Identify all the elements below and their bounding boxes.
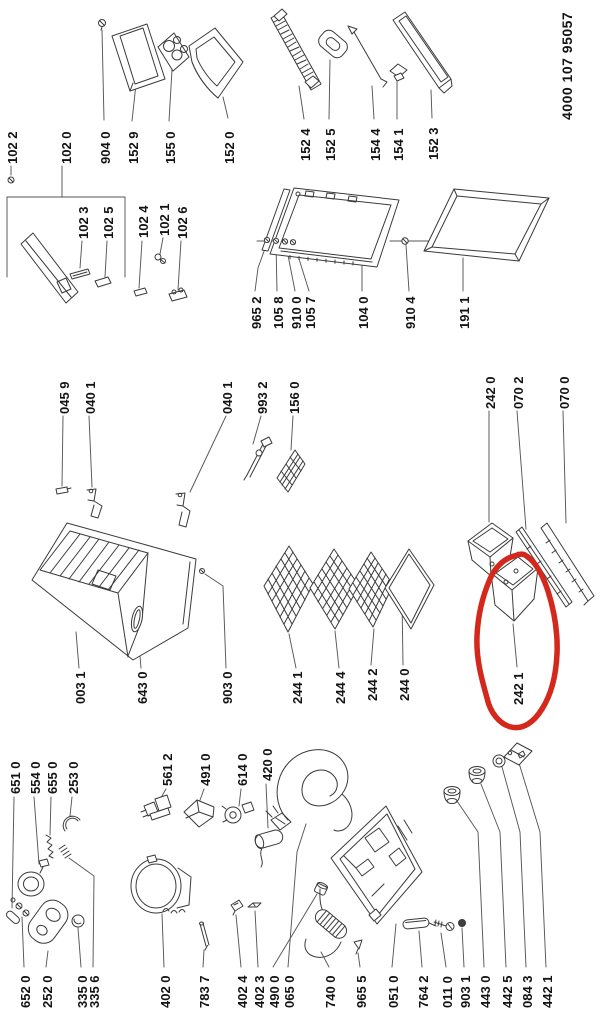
label-490-0: 490 0: [267, 975, 282, 1008]
part-clip-402-3: [248, 903, 261, 907]
label-764-2: 764 2: [416, 975, 431, 1008]
label-104-0: 104 0: [356, 296, 371, 329]
exploded-parts-diagram: 4000 107 95057 102 2 102 0 904 0 152 9 1…: [0, 0, 600, 1020]
label-154-1: 154 1: [391, 128, 406, 161]
part-grommet-490-0: [314, 881, 329, 896]
label-011-0: 011 0: [440, 976, 455, 1008]
part-spring-655-0: [46, 835, 53, 858]
label-152-0: 152 0: [222, 131, 237, 164]
part-screw-903-0: [200, 569, 205, 574]
label-904-0: 904 0: [98, 131, 113, 164]
label-910-4: 910 4: [403, 296, 418, 329]
label-154-4: 154 4: [368, 128, 383, 161]
label-965-2: 965 2: [249, 296, 264, 329]
label-045-9: 045 9: [57, 381, 72, 414]
part-ice-tray-156-0: [277, 450, 305, 492]
part-foot-443-0: [444, 787, 460, 804]
part-screw-910-4: [402, 238, 408, 244]
part-drier-764-2: [403, 918, 436, 930]
parts-diagram-page: 4000 107 95057 102 2 102 0 904 0 152 9 1…: [0, 0, 600, 1020]
label-253-0: 253 0: [66, 761, 81, 794]
label-244-4: 244 4: [333, 671, 348, 704]
label-152-4: 152 4: [298, 128, 313, 161]
part-tube-783-7: [200, 922, 210, 950]
part-capacitor-420-0: [254, 828, 285, 867]
label-244-2: 244 2: [365, 668, 380, 701]
part-102-3: [70, 269, 90, 279]
part-door-104-0: [262, 188, 399, 267]
label-655-0: 655 0: [45, 761, 60, 794]
label-040-1-right: 040 1: [220, 381, 235, 414]
part-cover-491-0: [184, 800, 214, 827]
label-070-0: 070 0: [557, 376, 572, 409]
part-bushing-084-3: [493, 755, 505, 767]
label-051-0: 051 0: [386, 975, 401, 1008]
part-screw-904-0: [99, 20, 106, 31]
part-clamp-253-0: [63, 816, 80, 831]
label-152-3: 152 3: [426, 127, 441, 160]
part-heater-loop-740-0: [305, 889, 350, 957]
label-443-0: 443 0: [478, 975, 493, 1008]
label-783-7: 783 7: [197, 975, 212, 1008]
label-065-0: 065 0: [282, 975, 297, 1008]
part-labels: 4000 107 95057 102 2 102 0 904 0 152 9 1…: [5, 12, 575, 1008]
part-gasket-191-1: [424, 189, 549, 261]
label-102-4: 102 4: [136, 205, 151, 238]
label-102-5: 102 5: [101, 206, 116, 239]
label-402-0: 402 0: [158, 975, 173, 1008]
label-335-6: 335 6: [87, 975, 102, 1008]
label-152-5: 152 5: [323, 128, 338, 161]
part-ring-152-5: [316, 27, 350, 60]
part-door-bin-152-0: [189, 28, 243, 98]
part-foot-442-5: [469, 767, 485, 784]
part-rod-154-4: [348, 26, 387, 87]
label-102-6: 102 6: [175, 206, 190, 239]
label-614-0: 614 0: [235, 753, 250, 786]
part-sensor-bulb-651-0: [5, 910, 21, 925]
part-screw-011-0: [434, 920, 454, 931]
part-door-shelf-152-9: [112, 24, 165, 91]
part-vent-grille-152-4: [271, 9, 321, 90]
label-402-4: 402 4: [235, 975, 250, 1008]
part-hinge-040-1-right: [176, 493, 190, 527]
leader-lines: [7, 30, 566, 967]
document-number: 4000 107 95057: [559, 12, 575, 120]
label-993-2: 993 2: [255, 381, 270, 414]
part-door-inner-panel-102-0: [21, 233, 78, 303]
label-102-2: 102 2: [5, 131, 20, 164]
label-084-3: 084 3: [520, 975, 535, 1008]
label-561-2: 561 2: [160, 753, 175, 786]
part-screw-903-1: [459, 920, 466, 927]
label-402-3: 402 3: [252, 975, 267, 1008]
label-152-9: 152 9: [126, 131, 141, 164]
label-910-0: 910 0: [289, 296, 304, 329]
part-cabinet-003-1: [32, 523, 196, 660]
part-base-plate-051-0: [331, 806, 422, 924]
label-191-1: 191 1: [457, 296, 472, 329]
part-pin-045-9: [56, 487, 71, 494]
label-420-0: 420 0: [260, 748, 275, 781]
label-156-0: 156 0: [287, 381, 302, 414]
label-040-1-left: 040 1: [83, 381, 98, 414]
label-252-0: 252 0: [40, 975, 55, 1008]
label-102-0: 102 0: [59, 131, 74, 164]
part-power-cord-065-0: [266, 750, 352, 831]
label-102-1: 102 1: [157, 203, 172, 236]
part-relay-561-2: [141, 795, 171, 820]
part-clip-154-1: [390, 64, 407, 81]
part-thermometer-993-2: [244, 437, 272, 480]
part-glass-shelf-244-0: [385, 549, 434, 629]
part-coil-335-6: [59, 845, 71, 858]
label-155-0: 155 0: [163, 131, 178, 164]
part-102-5: [95, 277, 111, 287]
part-compressor-402-0: [131, 855, 191, 913]
part-shelf-244-1: [264, 546, 313, 632]
label-244-1: 244 1: [290, 671, 305, 704]
part-cap-335-0: [72, 915, 84, 927]
label-105-8: 105 8: [271, 296, 286, 329]
part-thermostat-housing-252-0: [23, 895, 73, 948]
label-442-1: 442 1: [540, 975, 555, 1008]
part-screw-102-2: [8, 177, 14, 183]
label-003-1: 003 1: [73, 671, 88, 704]
label-070-2: 070 2: [511, 376, 526, 409]
label-652-0: 652 0: [18, 975, 33, 1008]
part-clip-402-4: [231, 900, 243, 915]
part-102-1: [155, 254, 166, 264]
label-442-5: 442 5: [500, 975, 515, 1008]
part-knob-554-0: [18, 859, 49, 896]
part-965-5: [354, 940, 362, 954]
label-965-5: 965 5: [354, 975, 369, 1008]
part-hinge-040-1-left: [87, 489, 102, 518]
label-491-0: 491 0: [198, 753, 213, 786]
label-242-1: 242 1: [511, 672, 526, 705]
label-643-0: 643 0: [135, 671, 150, 704]
label-903-1: 903 1: [458, 975, 473, 1008]
label-740-0: 740 0: [323, 975, 338, 1008]
label-903-0: 903 0: [220, 671, 235, 704]
part-egg-insert-155-0: [158, 33, 189, 71]
label-105-7: 105 7: [303, 296, 318, 329]
label-244-0: 244 0: [397, 668, 412, 701]
part-hinge-bracket-442-1: [504, 743, 532, 765]
part-starter-614-0: [222, 802, 254, 823]
label-651-0: 651 0: [8, 761, 23, 794]
part-trim-152-3: [393, 12, 452, 93]
part-102-4: [134, 288, 147, 296]
label-102-3: 102 3: [76, 206, 91, 239]
label-554-0: 554 0: [28, 761, 43, 794]
label-242-0: 242 0: [483, 376, 498, 409]
